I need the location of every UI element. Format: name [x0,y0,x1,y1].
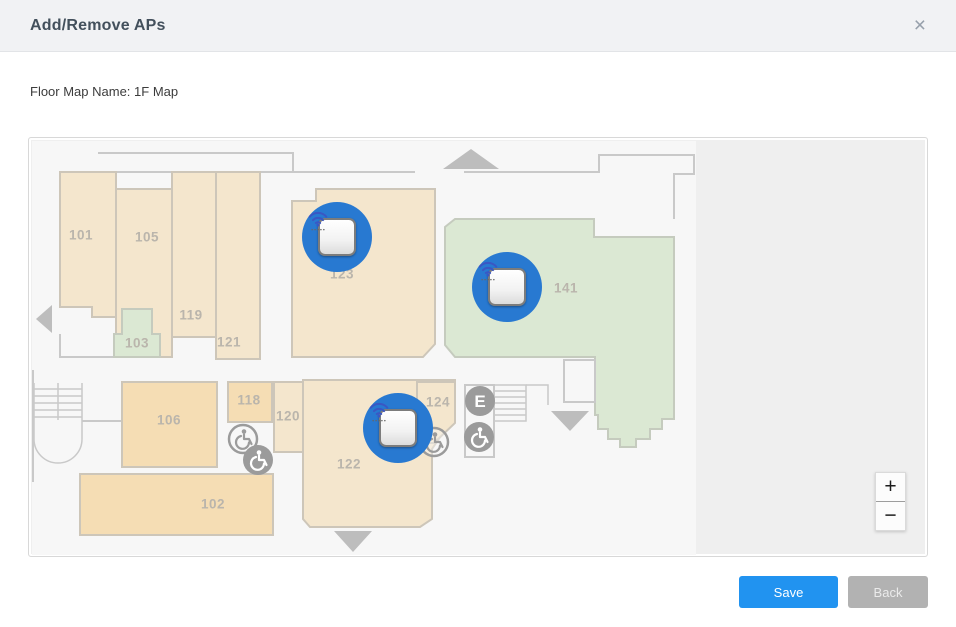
room-101-shape [60,172,116,317]
room-119-shape [172,172,216,337]
room-106-shape [122,382,217,467]
close-icon[interactable]: × [908,13,932,38]
back-button[interactable]: Back [848,576,928,608]
svg-text:E: E [474,392,485,411]
corridor-nook [564,360,595,402]
zoom-out-button[interactable]: − [876,502,905,530]
wifi-ap-icon [379,409,417,447]
floor-plan-svg: E [30,139,928,557]
wheelchair-filled-icon [243,445,273,475]
room-120-shape [274,382,304,452]
elevator-icon: E [465,386,495,416]
wifi-ap-icon [488,268,526,306]
room-118-shape [228,382,272,422]
dialog-title: Add/Remove APs [30,17,166,35]
room-121-shape [216,172,260,359]
map-zoom-control: + − [875,472,906,531]
dialog-header: Add/Remove APs × [0,0,956,52]
zoom-in-button[interactable]: + [876,473,905,501]
save-button[interactable]: Save [739,576,838,608]
ap-marker-ap-1[interactable] [302,202,372,272]
floor-map[interactable]: E 10110511910312112314110611812012412210… [28,137,928,557]
room-102-shape [80,474,273,535]
ap-marker-ap-3[interactable] [363,393,433,463]
wheelchair-filled-icon [464,422,494,452]
ap-marker-ap-2[interactable] [472,252,542,322]
wifi-ap-icon [318,218,356,256]
floor-map-name: Floor Map Name: 1F Map [30,84,178,99]
